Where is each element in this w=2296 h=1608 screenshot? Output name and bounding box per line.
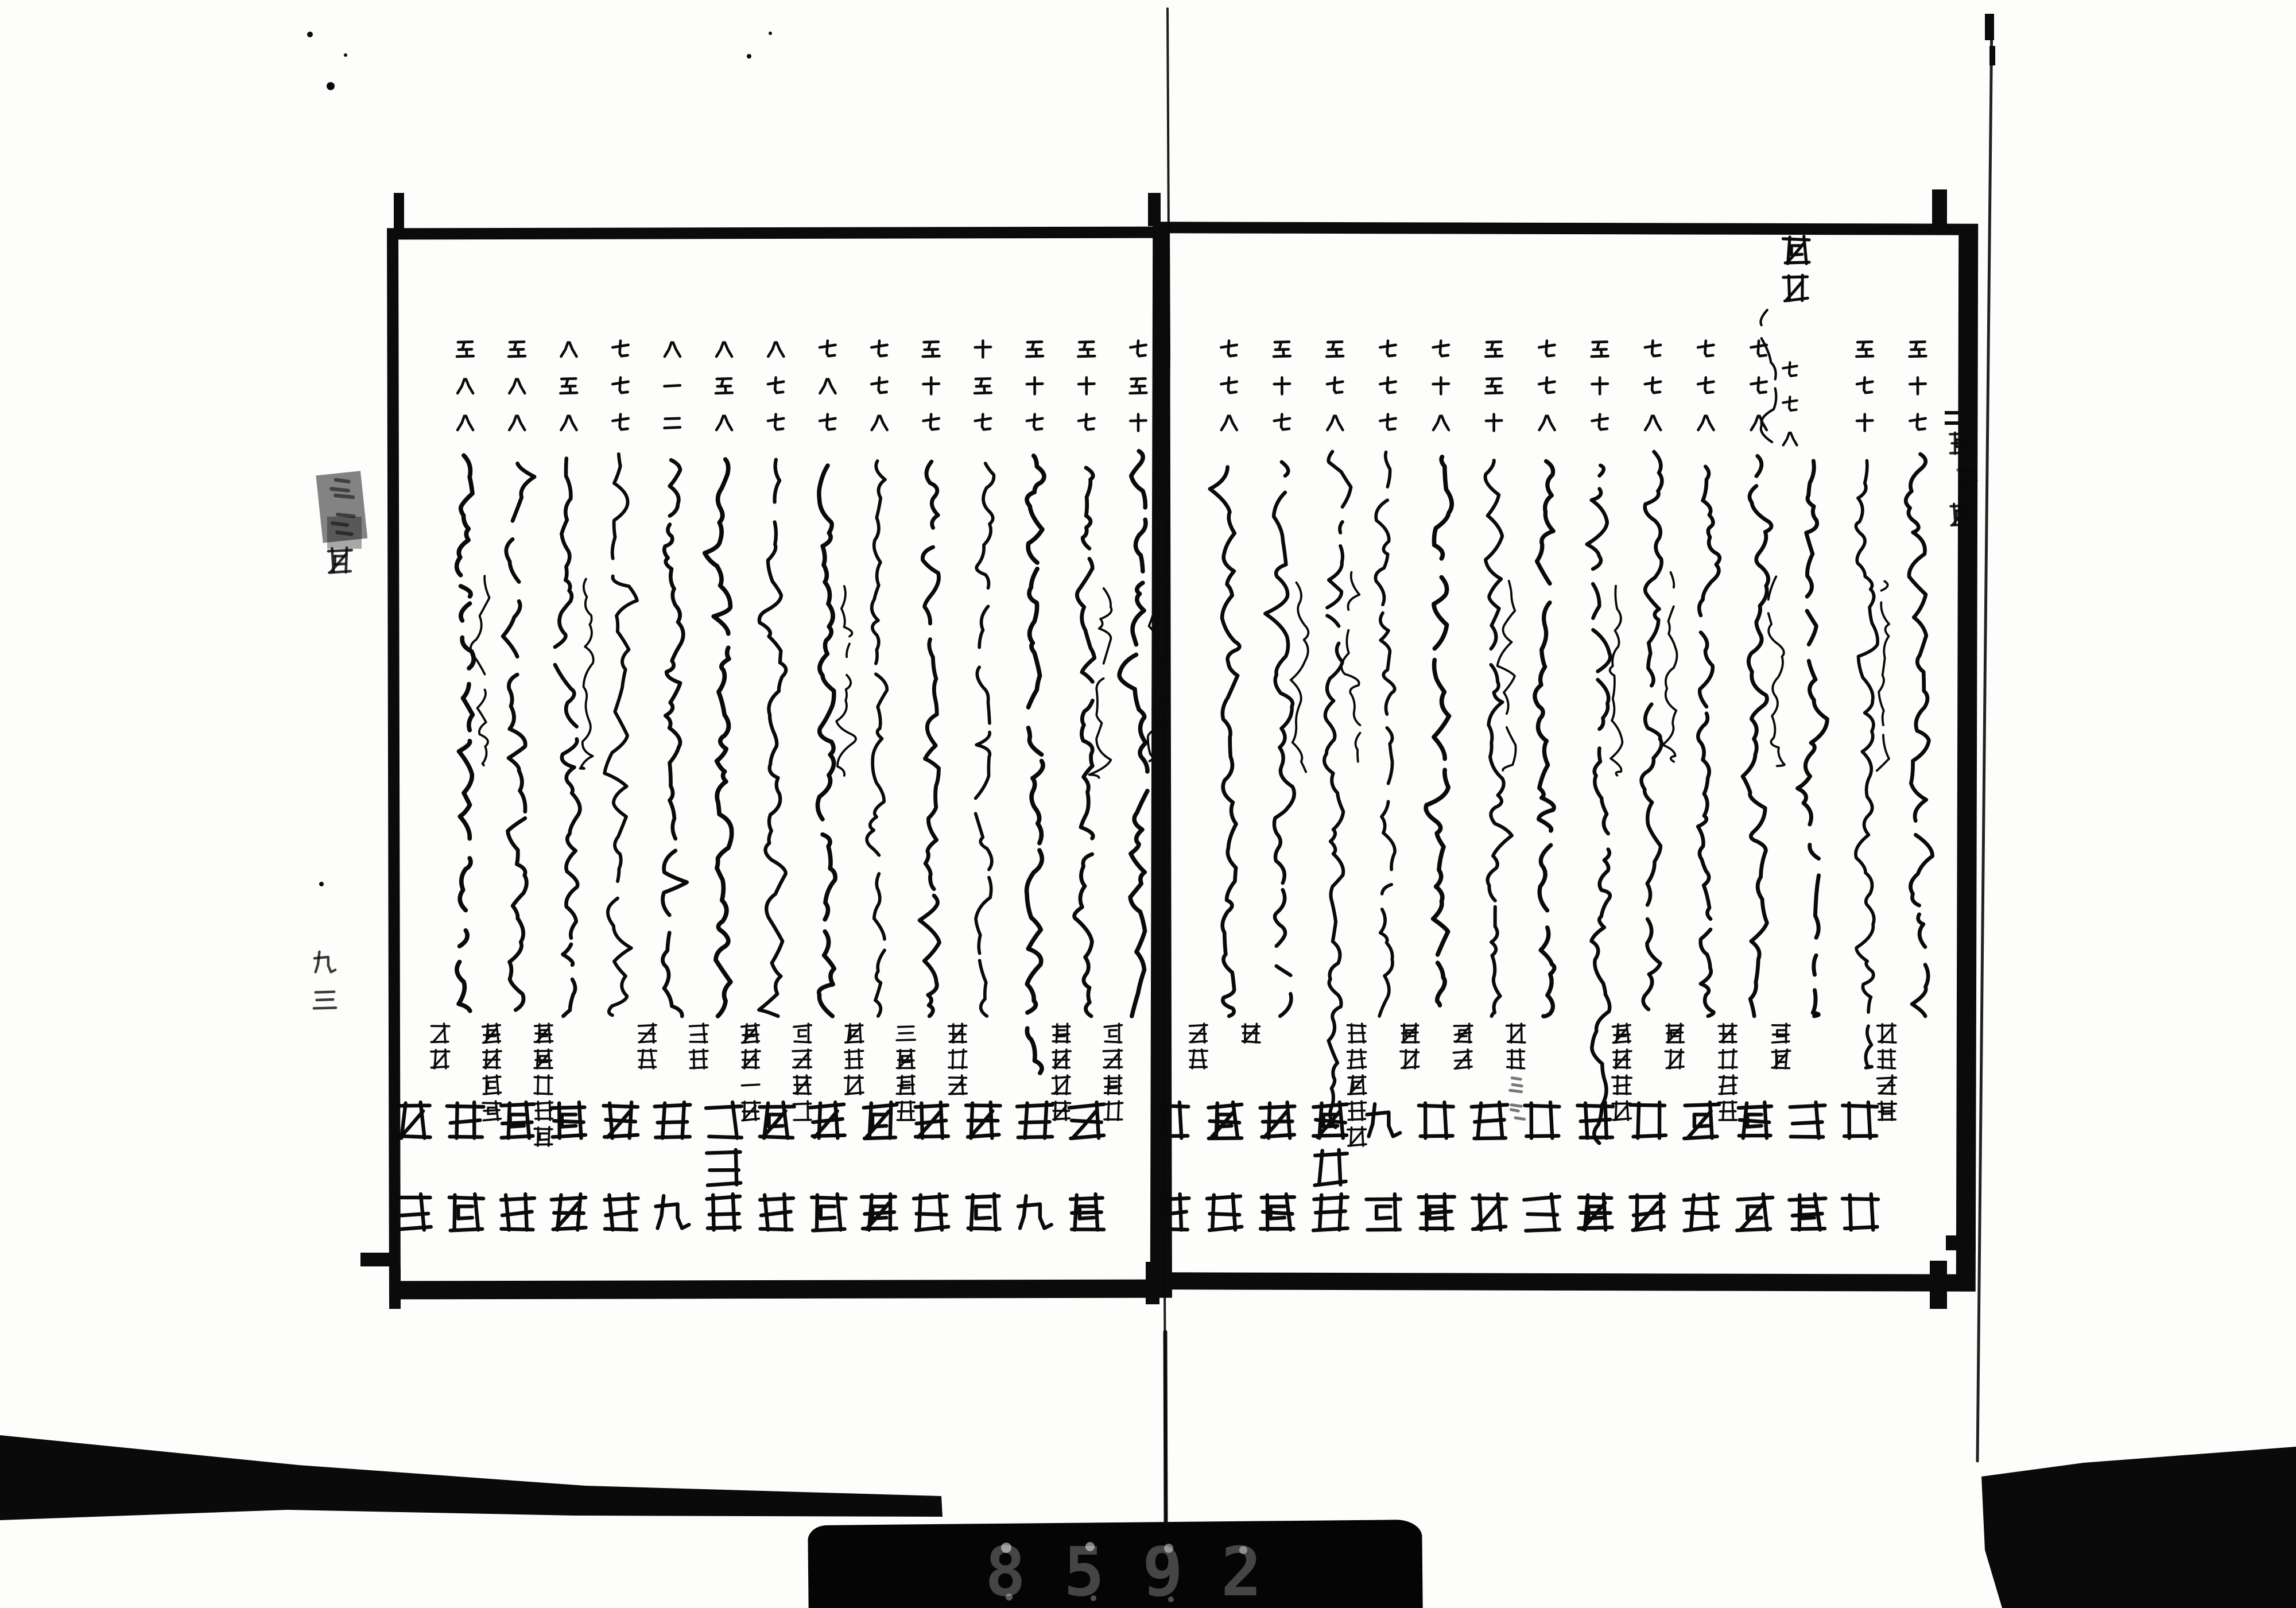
frame-corner-tab (1945, 421, 1970, 425)
glyph (332, 514, 354, 534)
frame-corner-tab (1930, 1261, 1947, 1309)
frame-corner-tab (1945, 411, 1972, 414)
counter-digits: 8592 (985, 1537, 1421, 1608)
glyph (328, 548, 352, 572)
frame-corner-tab (1932, 189, 1947, 231)
left-margin-title (316, 471, 367, 572)
frame-corner-tab (394, 193, 404, 230)
left-page-frame (387, 227, 1172, 1300)
right-page-frame (1150, 222, 1979, 1292)
glyph (331, 480, 353, 497)
frame-corner-tab (360, 1253, 390, 1266)
glyph (314, 992, 336, 1009)
frame-corner-tab (1146, 1262, 1159, 1304)
frame-corner-tab (1946, 1235, 1976, 1250)
left-page-number (314, 952, 336, 1009)
frame-corner-tab (1148, 193, 1161, 226)
glyph (315, 952, 335, 972)
frame-corner-tab (389, 1268, 401, 1309)
scanned-page: 8592 (0, 0, 2296, 1608)
